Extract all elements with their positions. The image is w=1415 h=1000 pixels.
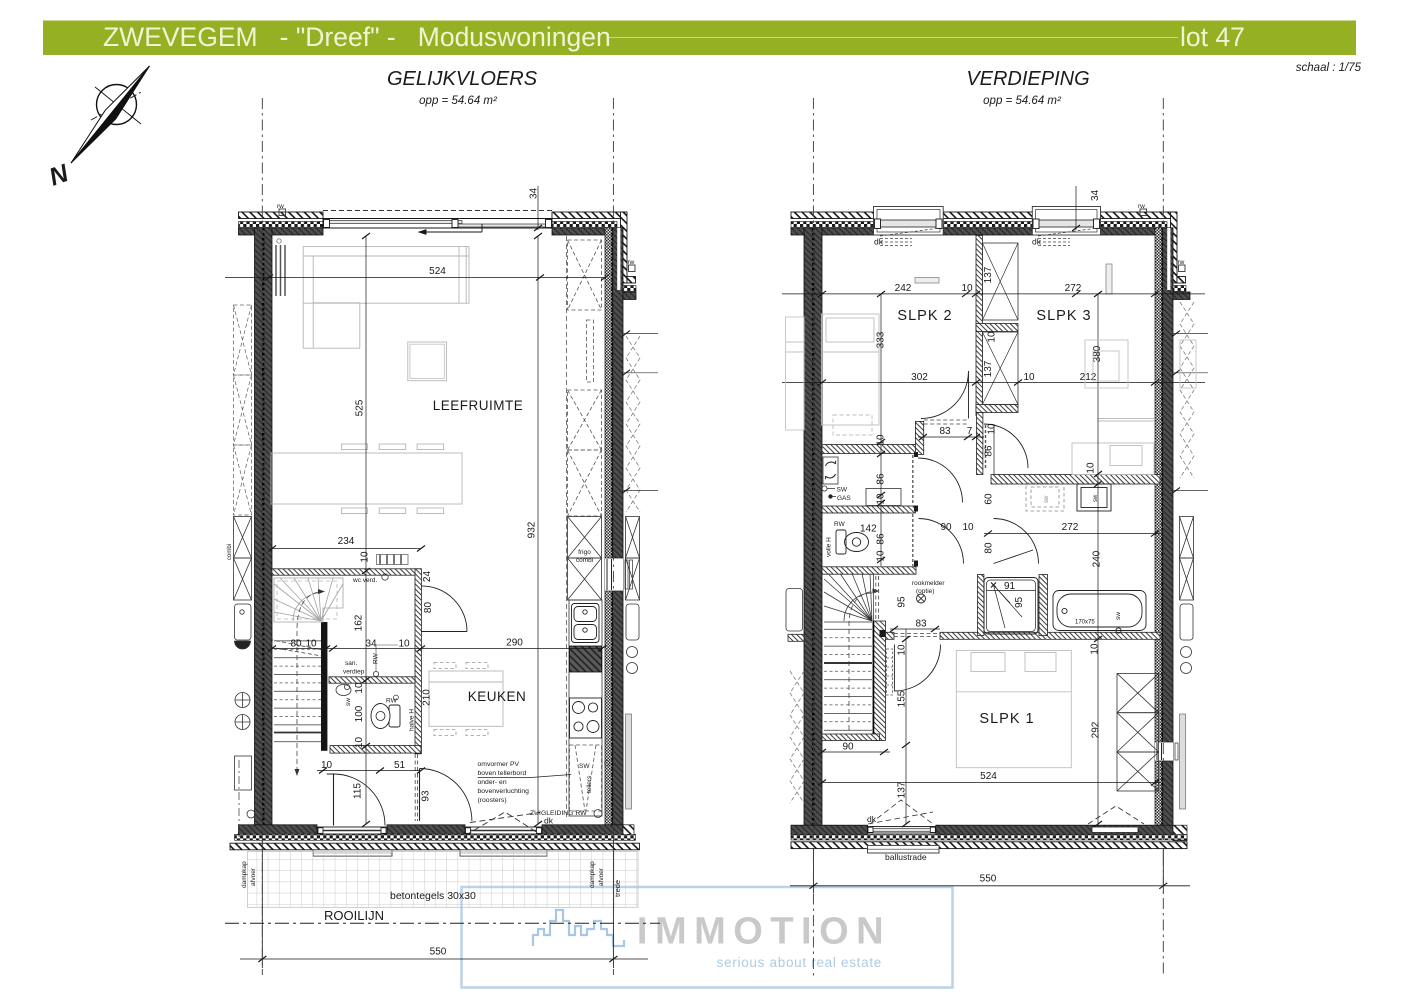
svg-text:omvormer PV: omvormer PV [478,761,520,768]
svg-text:sw: sw [1115,612,1122,620]
svg-text:schaal : 1/75: schaal : 1/75 [1296,62,1362,74]
svg-text:dampkap: dampkap [589,861,596,888]
svg-text:155: 155 [897,690,908,707]
svg-text:10: 10 [1090,643,1101,655]
svg-text:524: 524 [980,771,997,782]
svg-text:RW: RW [834,521,846,528]
svg-text:10: 10 [987,331,998,343]
svg-text:86: 86 [984,445,995,457]
svg-text:sw: sw [1044,495,1050,503]
svg-text:10: 10 [1023,372,1035,383]
svg-text:162: 162 [354,614,365,631]
svg-text:137: 137 [983,266,994,283]
svg-text:10: 10 [962,522,974,533]
svg-text:142: 142 [860,524,877,535]
svg-text:302: 302 [911,372,928,383]
svg-text:10: 10 [354,737,365,749]
svg-text:IMMOTION: IMMOTION [637,911,891,953]
svg-text:91: 91 [1004,581,1016,592]
svg-text:10: 10 [354,682,365,694]
svg-text:95: 95 [897,596,908,608]
svg-text:10: 10 [1086,462,1097,474]
svg-text:combi: combi [227,544,233,560]
svg-text:90: 90 [842,742,854,753]
svg-text:86: 86 [876,533,887,545]
svg-text:SLPK 2: SLPK 2 [897,308,952,324]
svg-text:dk: dk [874,237,884,247]
svg-text:10: 10 [398,639,410,650]
svg-text:(roosters): (roosters) [478,797,507,804]
svg-text:83: 83 [939,426,951,437]
svg-text:combi: combi [576,557,593,564]
svg-text:80: 80 [984,542,995,554]
svg-text:83: 83 [915,619,927,630]
svg-text:524: 524 [429,266,446,277]
svg-text:afvoer: afvoer [250,867,257,886]
svg-text:242: 242 [895,283,912,294]
svg-text:sw: sw [345,698,352,706]
svg-text:serious about real estate: serious about real estate [717,955,882,970]
svg-text:10: 10 [987,423,998,435]
svg-text:24: 24 [422,571,433,583]
svg-text:210: 210 [422,689,433,706]
svg-text:bovenverluchting: bovenverluchting [478,788,530,795]
svg-text:10: 10 [876,493,887,505]
svg-text:51: 51 [394,760,406,771]
svg-text:ZWEVEGEM - "Dreef" - Modus: ZWEVEGEM - "Dreef" - Moduswoningen [103,22,611,52]
svg-text:380: 380 [1092,345,1103,362]
svg-text:boven tellerbord: boven tellerbord [478,770,527,777]
svg-text:dampkap: dampkap [241,861,248,888]
svg-text:10: 10 [876,434,887,446]
svg-text:dk: dk [1032,237,1042,247]
svg-text:dk: dk [867,814,877,824]
svg-text:100: 100 [354,705,365,722]
svg-text:525: 525 [355,399,366,416]
svg-text:86: 86 [876,473,887,485]
svg-text:932: 932 [527,521,538,538]
svg-text:34: 34 [1090,189,1101,201]
svg-text:60: 60 [984,493,995,505]
svg-text:betontegels 30x30: betontegels 30x30 [390,890,476,902]
svg-text:RW: RW [386,698,398,705]
svg-text:80: 80 [423,602,434,614]
svg-text:rookmelder: rookmelder [912,580,945,587]
svg-text:34: 34 [529,187,540,199]
svg-text:292: 292 [1091,721,1102,738]
svg-text:SLPK 3: SLPK 3 [1036,308,1091,324]
svg-text:san.: san. [345,660,357,667]
svg-text:wc verd.: wc verd. [352,577,377,584]
svg-text:550: 550 [980,874,997,885]
svg-text:240: 240 [1092,550,1103,567]
svg-text:90: 90 [940,522,952,533]
svg-text:opp = 54.64 m²: opp = 54.64 m² [983,95,1062,107]
svg-text:onder- en: onder- en [478,779,507,786]
svg-text:80: 80 [290,639,302,650]
svg-text:tellers: tellers [586,775,593,793]
svg-text:verdiep: verdiep [343,669,365,676]
svg-text:SW: SW [837,487,848,494]
svg-text:234: 234 [338,536,355,547]
svg-text:afvoer: afvoer [598,867,605,886]
svg-text:10: 10 [360,551,371,563]
svg-text:dk: dk [544,816,554,826]
svg-text:10: 10 [876,550,887,562]
svg-text:137: 137 [983,360,994,377]
svg-text:95: 95 [1014,596,1025,608]
svg-text:10: 10 [961,283,973,294]
svg-text:ballustrade: ballustrade [885,852,927,862]
svg-text:SW: SW [579,763,590,770]
svg-text:115: 115 [353,783,364,799]
svg-text:VERDIEPING: VERDIEPING [966,68,1089,90]
svg-text:290: 290 [506,638,523,649]
svg-text:10: 10 [897,644,908,656]
svg-text:(optie): (optie) [916,588,934,595]
svg-text:333: 333 [876,331,887,348]
svg-text:10: 10 [321,760,333,771]
svg-text:272: 272 [1062,522,1079,533]
svg-text:KEUKEN: KEUKEN [468,689,527,704]
svg-text:lot 47: lot 47 [1180,22,1245,52]
svg-text:GELIJKVLOERS: GELIJKVLOERS [387,68,538,90]
svg-text:170x75: 170x75 [1075,620,1095,626]
svg-text:34: 34 [365,639,377,650]
svg-text:volle H: volle H [826,537,833,557]
svg-text:7: 7 [967,426,973,437]
svg-text:trede: trede [613,880,622,897]
svg-text:halve H: halve H [409,709,416,731]
svg-text:272: 272 [1065,283,1082,294]
svg-text:frigo: frigo [578,549,591,556]
svg-text:550: 550 [430,947,447,958]
svg-text:SLPK 1: SLPK 1 [979,711,1034,727]
svg-text:137: 137 [897,781,908,798]
svg-text:LEEFRUIMTE: LEEFRUIMTE [433,398,524,413]
svg-text:10: 10 [305,639,317,650]
svg-text:opp = 54.64 m²: opp = 54.64 m² [419,95,498,107]
svg-text:ROOILIJN: ROOILIJN [324,908,384,923]
svg-text:93: 93 [421,790,432,802]
svg-text:GAS: GAS [837,495,851,502]
